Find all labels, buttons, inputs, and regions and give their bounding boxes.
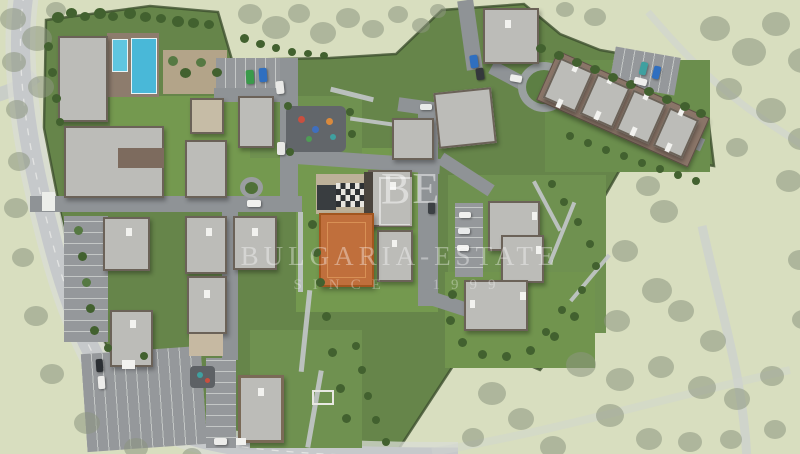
car	[420, 104, 432, 110]
site-tree	[272, 44, 280, 52]
roundabout-green	[245, 182, 258, 194]
site-tree	[372, 416, 380, 424]
site-tree	[196, 58, 206, 67]
site-tree	[584, 139, 592, 147]
site-tree	[574, 218, 582, 226]
site-tree	[312, 248, 321, 257]
entrance-canopy	[122, 360, 135, 369]
meadow-tree	[700, 16, 730, 41]
car	[214, 438, 227, 445]
meadow-tree	[262, 16, 290, 39]
site-tree	[696, 109, 706, 118]
meadow-tree	[124, 438, 148, 454]
site-tree	[188, 18, 199, 28]
site-tree	[316, 278, 325, 287]
building-terrace	[189, 334, 223, 356]
meadow-tree	[642, 278, 672, 303]
site-tree	[352, 342, 360, 350]
garden-court	[312, 390, 334, 405]
playground-equipment	[312, 126, 319, 133]
meadow-tree	[732, 38, 766, 66]
meadow-tree	[12, 248, 34, 267]
meadow-tree	[540, 436, 566, 454]
meadow-tree	[788, 48, 800, 73]
site-tree	[348, 130, 356, 138]
meadow-tree	[28, 76, 54, 98]
site-tree	[448, 290, 457, 299]
meadow-tree	[462, 428, 484, 447]
playground-small	[190, 366, 215, 388]
site-tree	[168, 56, 178, 66]
site-tree	[608, 73, 618, 82]
meadow-tree	[74, 412, 100, 434]
site-tree	[602, 146, 610, 154]
rooftop-unit	[505, 20, 511, 28]
car	[246, 70, 255, 85]
building	[103, 217, 150, 271]
rooftop-unit	[520, 292, 526, 300]
meadow-tree	[24, 306, 48, 326]
site-tree	[586, 240, 594, 248]
site-tree	[458, 338, 467, 347]
meadow-tree	[788, 128, 800, 150]
highlighted-building-inner	[327, 222, 366, 278]
site-tree	[286, 148, 294, 156]
site-tree	[90, 326, 99, 335]
meadow-tree	[362, 20, 384, 38]
meadow-tree	[310, 22, 336, 44]
site-tree	[172, 16, 184, 27]
site-tree	[308, 220, 317, 229]
building	[368, 170, 412, 227]
site-tree	[204, 20, 214, 29]
site-tree	[180, 68, 191, 78]
car	[457, 245, 469, 251]
meadow-tree	[604, 310, 630, 332]
meadow-tree	[412, 18, 430, 33]
site-tree	[578, 286, 586, 294]
building	[377, 230, 413, 282]
rooftop-unit	[470, 300, 475, 308]
meadow-tree	[636, 428, 662, 450]
car	[459, 212, 471, 218]
site-tree	[256, 40, 265, 48]
rooftop-unit	[392, 240, 397, 247]
site-tree	[382, 438, 390, 446]
building	[483, 8, 539, 64]
playground-equipment	[306, 136, 312, 142]
site-tree	[554, 51, 564, 60]
building-beige	[190, 98, 224, 134]
meadow-tree	[776, 170, 800, 192]
pergola	[317, 185, 336, 210]
meadow-tree	[700, 330, 726, 352]
site-tree	[550, 332, 559, 341]
meadow-tree	[288, 4, 310, 23]
site-tree	[342, 414, 351, 423]
site-tree	[320, 52, 328, 59]
meadow-tree	[0, 8, 26, 30]
building	[187, 276, 227, 334]
entrance-gate	[42, 192, 55, 211]
site-tree	[548, 180, 556, 188]
site-tree	[644, 87, 654, 96]
meadow-tree	[478, 382, 506, 405]
car	[275, 81, 284, 95]
site-tree	[566, 132, 574, 140]
site-tree	[572, 58, 582, 67]
car	[259, 68, 268, 83]
site-tree	[358, 366, 366, 374]
meadow-tree	[678, 432, 702, 452]
playground-equipment	[330, 134, 336, 140]
site-tree	[212, 68, 222, 77]
meadow-tree	[8, 152, 30, 171]
meadow-tree	[430, 4, 446, 18]
building	[185, 216, 227, 274]
meadow-tree	[6, 100, 28, 119]
rooftop-unit	[390, 182, 396, 190]
site-tree	[662, 95, 672, 104]
meadow-tree	[788, 250, 800, 270]
swimming-pool	[131, 38, 157, 94]
site-tree	[284, 102, 292, 110]
car	[98, 376, 106, 389]
meadow-tree	[596, 404, 624, 427]
site-tree	[52, 94, 61, 103]
site-plan-image: BE BULGARIA-ESTATE SINCE 1999	[0, 0, 800, 454]
site-tree	[364, 392, 372, 400]
site-tree	[108, 12, 118, 21]
site-tree	[140, 352, 148, 360]
meadow-tree	[648, 356, 674, 378]
playground-equipment	[298, 116, 305, 123]
site-tree	[140, 12, 151, 22]
rooftop-unit	[126, 228, 132, 236]
car	[428, 202, 435, 214]
entrance-canopy	[236, 438, 246, 445]
car	[96, 359, 104, 372]
site-tree	[56, 118, 64, 126]
site-tree	[74, 226, 83, 235]
building	[233, 216, 277, 270]
meadow-tree	[668, 300, 694, 322]
building	[238, 96, 274, 148]
site-tree	[446, 316, 455, 325]
building	[392, 118, 434, 160]
building	[185, 140, 227, 198]
meadow-tree	[238, 4, 262, 24]
site-features	[0, 0, 800, 454]
site-tree	[592, 262, 600, 270]
car	[277, 142, 285, 155]
meadow-tree	[716, 78, 742, 100]
building-brown-wing	[118, 148, 164, 168]
site-tree	[78, 252, 87, 261]
site-tree	[104, 344, 112, 352]
car	[475, 68, 485, 81]
site-tree	[590, 65, 600, 74]
meadow-tree	[508, 408, 534, 430]
rooftop-unit	[206, 228, 212, 236]
site-tree	[48, 68, 57, 77]
site-tree	[336, 384, 345, 393]
meadow-tree	[792, 310, 800, 329]
playground-equipment	[205, 378, 210, 383]
building	[501, 235, 544, 283]
meadow-tree	[636, 176, 660, 196]
site-tree	[478, 350, 487, 359]
meadow-tree	[688, 376, 716, 399]
site-tree	[638, 159, 646, 167]
site-tree	[66, 8, 77, 18]
meadow-tree	[612, 240, 638, 262]
site-tree	[52, 12, 64, 23]
meadow-tree	[556, 2, 574, 17]
site-tree	[94, 8, 106, 19]
site-tree	[502, 352, 511, 361]
building	[433, 87, 497, 149]
meadow-tree	[756, 98, 786, 123]
meadow-tree	[566, 352, 596, 377]
site-tree	[570, 312, 579, 321]
site-tree	[240, 34, 249, 43]
meadow-tree	[2, 52, 26, 72]
site-tree	[124, 8, 136, 19]
site-tree	[346, 108, 354, 116]
meadow-tree	[650, 200, 678, 223]
site-tree	[656, 165, 664, 173]
playground-equipment	[197, 372, 203, 378]
meadow-tree	[182, 448, 202, 454]
swimming-pool	[112, 39, 128, 72]
internal-road	[30, 196, 302, 212]
meadow-tree	[606, 368, 634, 391]
meadow-tree	[726, 138, 748, 157]
car	[469, 55, 479, 69]
site-tree	[322, 312, 331, 321]
meadow-tree	[720, 430, 742, 449]
meadow-tree	[724, 388, 750, 410]
site-tree	[288, 48, 296, 56]
site-tree	[328, 348, 337, 357]
site-tree	[560, 198, 568, 206]
site-tree	[82, 278, 91, 287]
building	[58, 36, 108, 122]
rooftop-unit	[252, 228, 258, 236]
site-tree	[692, 177, 700, 185]
site-tree	[526, 346, 535, 355]
site-tree	[620, 152, 628, 160]
site-tree	[558, 306, 566, 314]
meadow-tree	[4, 198, 28, 218]
rooftop-unit	[258, 388, 264, 396]
car	[247, 200, 261, 207]
meadow-tree	[762, 12, 790, 36]
car	[458, 228, 470, 234]
footpath	[298, 212, 303, 292]
site-tree	[304, 50, 312, 57]
rooftop-unit	[204, 290, 210, 298]
meadow-tree	[336, 8, 360, 28]
meadow-tree	[40, 364, 64, 384]
meadow-tree	[760, 366, 784, 386]
site-tree	[44, 42, 53, 51]
rooftop-unit	[532, 212, 537, 220]
meadow-tree	[388, 6, 408, 23]
site-tree	[156, 14, 166, 23]
meadow-tree	[584, 8, 606, 26]
playground-equipment	[326, 118, 333, 125]
site-tree	[674, 171, 682, 179]
site-tree	[542, 328, 550, 336]
building	[238, 375, 284, 443]
site-tree	[680, 102, 690, 111]
site-tree	[536, 44, 546, 53]
site-tree	[86, 304, 95, 313]
rooftop-unit	[130, 320, 136, 328]
rooftop-unit	[536, 246, 541, 254]
site-tree	[80, 12, 90, 21]
meadow-tree	[764, 420, 786, 439]
